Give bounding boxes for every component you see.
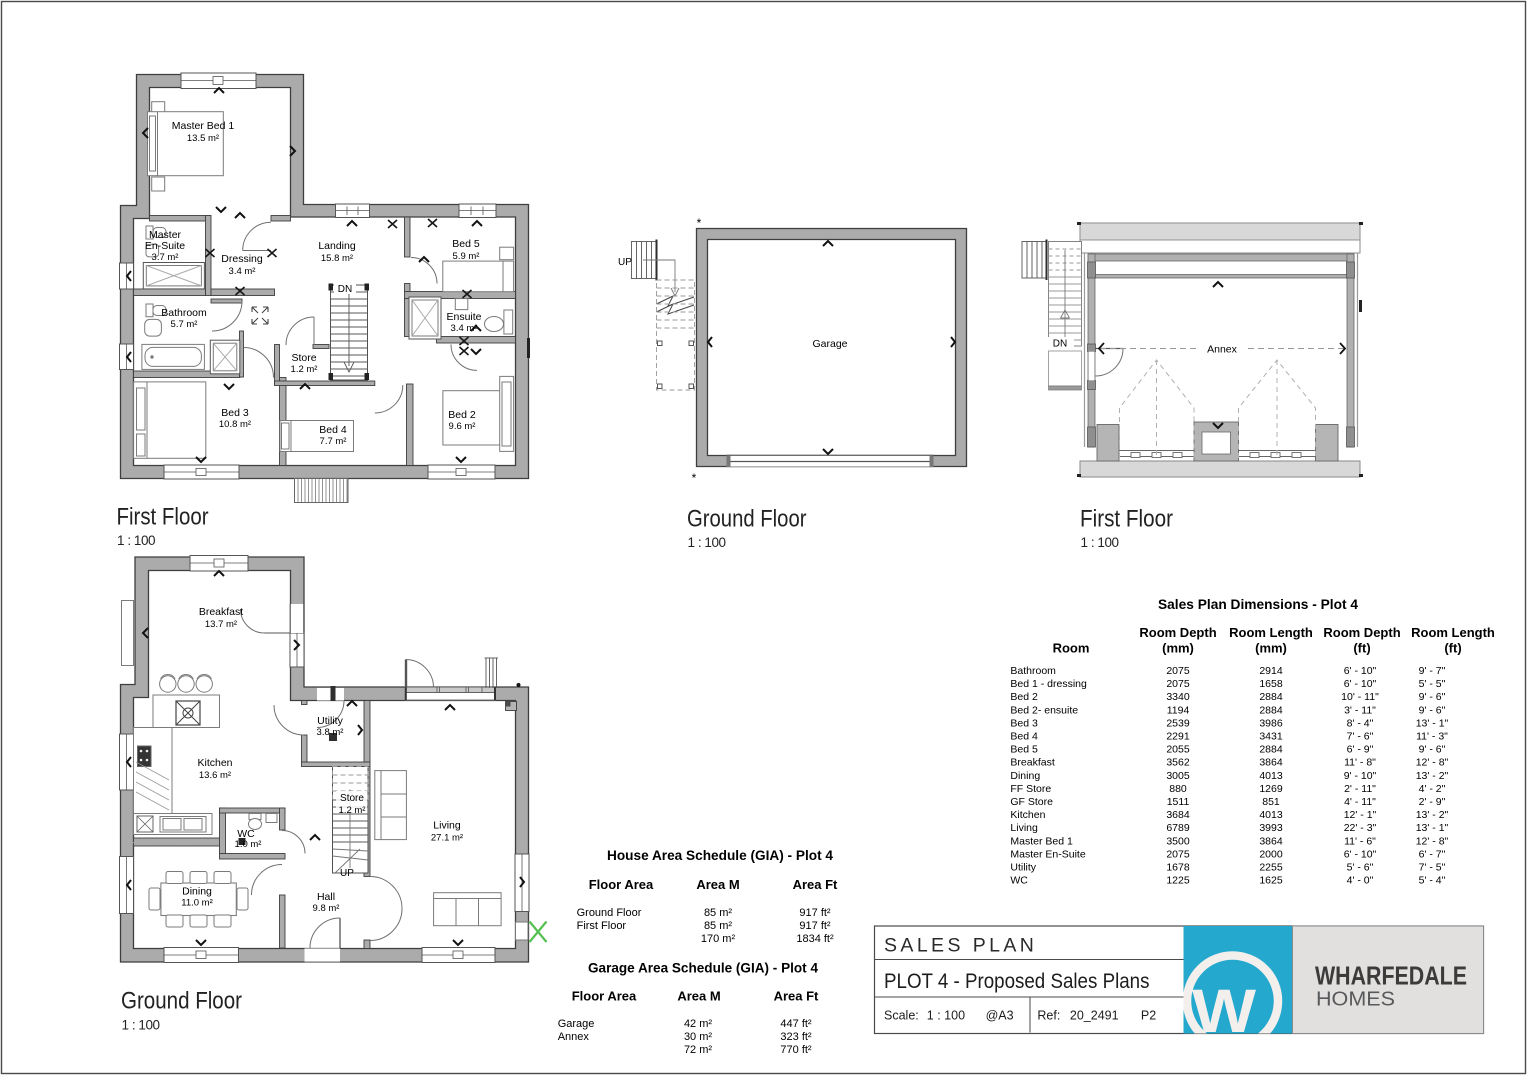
svg-text:3562: 3562 bbox=[1166, 757, 1190, 769]
svg-text:3.7 m²: 3.7 m² bbox=[152, 252, 179, 263]
svg-text:12' - 8": 12' - 8" bbox=[1416, 835, 1449, 847]
svg-text:13.5 m²: 13.5 m² bbox=[187, 133, 219, 144]
svg-text:4013: 4013 bbox=[1259, 809, 1283, 821]
svg-text:1194: 1194 bbox=[1167, 704, 1190, 716]
svg-text:9' - 10": 9' - 10" bbox=[1344, 770, 1377, 782]
svg-text:10' - 11": 10' - 11" bbox=[1341, 691, 1379, 703]
svg-text:Room Depth: Room Depth bbox=[1139, 625, 1216, 640]
svg-text:85 m²: 85 m² bbox=[704, 920, 732, 932]
svg-text:(mm): (mm) bbox=[1255, 641, 1287, 656]
svg-text:Bed 4: Bed 4 bbox=[1010, 731, 1038, 743]
svg-text:Breakfast: Breakfast bbox=[199, 606, 243, 618]
svg-text:4' - 0": 4' - 0" bbox=[1347, 875, 1374, 887]
svg-text:1.2 m²: 1.2 m² bbox=[339, 805, 366, 816]
svg-text:Kitchen: Kitchen bbox=[197, 757, 232, 769]
svg-text:Ref:: Ref: bbox=[1037, 1009, 1060, 1023]
svg-text:4' - 11": 4' - 11" bbox=[1344, 796, 1376, 808]
svg-text:SALES PLAN: SALES PLAN bbox=[884, 935, 1037, 957]
svg-text:9' - 6": 9' - 6" bbox=[1419, 691, 1446, 703]
svg-text:9.6 m²: 9.6 m² bbox=[449, 421, 476, 432]
svg-text:Bed 3: Bed 3 bbox=[1010, 717, 1038, 729]
svg-text:1658: 1658 bbox=[1259, 678, 1283, 690]
svg-text:6' - 10": 6' - 10" bbox=[1344, 848, 1377, 860]
svg-text:First Floor: First Floor bbox=[1080, 506, 1173, 533]
svg-text:Store: Store bbox=[291, 352, 316, 364]
svg-text:8' - 4": 8' - 4" bbox=[1347, 717, 1374, 729]
svg-text:1269: 1269 bbox=[1259, 783, 1283, 795]
svg-text:Master Bed 1: Master Bed 1 bbox=[1010, 835, 1073, 847]
svg-text:Bed 1 - dressing: Bed 1 - dressing bbox=[1010, 678, 1087, 690]
svg-text:1511: 1511 bbox=[1167, 796, 1190, 808]
svg-text:1.2 m²: 1.2 m² bbox=[291, 364, 318, 375]
svg-text:3993: 3993 bbox=[1259, 822, 1283, 834]
svg-text:9' - 7": 9' - 7" bbox=[1419, 665, 1446, 677]
svg-text:27.1 m²: 27.1 m² bbox=[431, 833, 463, 844]
svg-text:2' - 9": 2' - 9" bbox=[1419, 796, 1446, 808]
svg-text:15.8 m²: 15.8 m² bbox=[321, 253, 353, 264]
svg-text:6' - 10": 6' - 10" bbox=[1344, 678, 1377, 690]
svg-text:1 : 100: 1 : 100 bbox=[688, 535, 727, 550]
svg-text:13.7 m²: 13.7 m² bbox=[205, 619, 237, 630]
svg-text:13' - 1": 13' - 1" bbox=[1416, 822, 1449, 834]
svg-text:1625: 1625 bbox=[1259, 875, 1283, 887]
svg-text:85 m²: 85 m² bbox=[704, 907, 732, 919]
svg-text:1 : 100: 1 : 100 bbox=[1081, 535, 1120, 550]
svg-text:3340: 3340 bbox=[1166, 691, 1190, 703]
svg-text:Bathroom: Bathroom bbox=[1010, 665, 1056, 677]
svg-text:En-Suite: En-Suite bbox=[145, 240, 185, 252]
svg-text:2075: 2075 bbox=[1166, 848, 1190, 860]
svg-text:UP: UP bbox=[618, 257, 632, 268]
svg-text:3' - 11": 3' - 11" bbox=[1344, 704, 1376, 716]
svg-text:42 m²: 42 m² bbox=[684, 1018, 712, 1030]
svg-text:6' - 9": 6' - 9" bbox=[1347, 744, 1374, 756]
svg-text:12' - 1": 12' - 1" bbox=[1344, 809, 1377, 821]
svg-text:3431: 3431 bbox=[1259, 731, 1283, 743]
svg-text:WC: WC bbox=[1010, 875, 1028, 887]
svg-text:*: * bbox=[692, 471, 697, 485]
svg-text:Room Length: Room Length bbox=[1411, 625, 1495, 640]
svg-text:Ground Floor: Ground Floor bbox=[577, 907, 642, 919]
svg-text:(mm): (mm) bbox=[1162, 641, 1194, 656]
svg-text:9.8 m²: 9.8 m² bbox=[313, 903, 340, 914]
svg-text:851: 851 bbox=[1262, 796, 1280, 808]
svg-text:6' - 7": 6' - 7" bbox=[1419, 848, 1446, 860]
svg-text:DN: DN bbox=[1053, 339, 1067, 350]
svg-text:First Floor: First Floor bbox=[577, 920, 627, 932]
svg-text:12' - 8": 12' - 8" bbox=[1416, 757, 1449, 769]
svg-text:PLOT 4 - Proposed Sales Plans: PLOT 4 - Proposed Sales Plans bbox=[884, 970, 1150, 993]
svg-text:(ft): (ft) bbox=[1353, 641, 1370, 656]
svg-text:Master En-Suite: Master En-Suite bbox=[1010, 848, 1085, 860]
svg-text:Annex: Annex bbox=[558, 1031, 590, 1043]
svg-text:3.8 m²: 3.8 m² bbox=[317, 727, 344, 738]
svg-text:Dressing: Dressing bbox=[221, 253, 263, 265]
svg-text:22' - 3": 22' - 3" bbox=[1344, 822, 1377, 834]
svg-text:Area Ft: Area Ft bbox=[793, 877, 838, 892]
svg-text:9' - 6": 9' - 6" bbox=[1419, 744, 1446, 756]
svg-text:11' - 8": 11' - 8" bbox=[1344, 757, 1376, 769]
svg-text:Garage Area Schedule (GIA) - P: Garage Area Schedule (GIA) - Plot 4 bbox=[588, 961, 818, 976]
svg-text:2' - 11": 2' - 11" bbox=[1344, 783, 1376, 795]
svg-text:13' - 1": 13' - 1" bbox=[1416, 717, 1449, 729]
svg-text:11' - 6": 11' - 6" bbox=[1344, 835, 1376, 847]
svg-text:13' - 2": 13' - 2" bbox=[1416, 770, 1449, 782]
svg-text:2884: 2884 bbox=[1259, 691, 1283, 703]
svg-text:Landing: Landing bbox=[318, 240, 356, 252]
svg-text:917 ft²: 917 ft² bbox=[799, 920, 831, 932]
svg-text:Hall: Hall bbox=[317, 891, 335, 903]
svg-text:5.9 m²: 5.9 m² bbox=[453, 251, 480, 262]
svg-text:2291: 2291 bbox=[1166, 731, 1190, 743]
svg-text:Room Length: Room Length bbox=[1229, 625, 1313, 640]
svg-text:UP: UP bbox=[340, 868, 354, 879]
svg-text:Kitchen: Kitchen bbox=[1010, 809, 1045, 821]
svg-text:Bed 5: Bed 5 bbox=[452, 238, 480, 250]
svg-text:2884: 2884 bbox=[1259, 704, 1283, 716]
svg-text:Dining: Dining bbox=[182, 886, 212, 898]
svg-text:1.0 m²: 1.0 m² bbox=[235, 839, 262, 850]
svg-text:Utility: Utility bbox=[1010, 862, 1036, 874]
svg-text:Bed 5: Bed 5 bbox=[1010, 744, 1038, 756]
svg-text:3500: 3500 bbox=[1166, 835, 1190, 847]
svg-text:11' - 3": 11' - 3" bbox=[1416, 731, 1448, 743]
svg-text:First Floor: First Floor bbox=[117, 504, 209, 531]
svg-text:3986: 3986 bbox=[1259, 717, 1283, 729]
svg-text:Ensuite: Ensuite bbox=[446, 311, 481, 323]
svg-text:2884: 2884 bbox=[1259, 744, 1283, 756]
svg-text:Bed 2- ensuite: Bed 2- ensuite bbox=[1010, 704, 1078, 716]
svg-text:Annex: Annex bbox=[1207, 344, 1238, 356]
svg-text:FF Store: FF Store bbox=[1010, 783, 1051, 795]
svg-text:13' - 2": 13' - 2" bbox=[1416, 809, 1449, 821]
svg-text:2075: 2075 bbox=[1166, 678, 1190, 690]
svg-text:3.4 m²: 3.4 m² bbox=[451, 323, 478, 334]
svg-text:917 ft²: 917 ft² bbox=[799, 907, 831, 919]
svg-text:WHARFEDALE: WHARFEDALE bbox=[1315, 961, 1467, 991]
svg-text:1225: 1225 bbox=[1166, 875, 1190, 887]
svg-text:Scale:: Scale: bbox=[884, 1009, 919, 1023]
svg-text:6' - 10": 6' - 10" bbox=[1344, 665, 1377, 677]
svg-text:Garage: Garage bbox=[558, 1018, 595, 1030]
svg-text:HOMES: HOMES bbox=[1316, 989, 1395, 1011]
svg-text:2255: 2255 bbox=[1259, 862, 1283, 874]
svg-text:20_2491: 20_2491 bbox=[1070, 1009, 1119, 1023]
svg-text:Floor Area: Floor Area bbox=[572, 989, 637, 1004]
svg-text:*: * bbox=[697, 216, 702, 230]
svg-text:@A3: @A3 bbox=[986, 1009, 1014, 1023]
svg-text:5' - 6": 5' - 6" bbox=[1347, 862, 1374, 874]
svg-text:Bathroom: Bathroom bbox=[161, 307, 207, 319]
svg-text:(ft): (ft) bbox=[1444, 641, 1461, 656]
svg-text:Area Ft: Area Ft bbox=[774, 989, 819, 1004]
svg-text:Bed 2: Bed 2 bbox=[1010, 691, 1038, 703]
svg-text:3864: 3864 bbox=[1259, 835, 1283, 847]
svg-text:2055: 2055 bbox=[1166, 744, 1190, 756]
svg-text:7' - 6": 7' - 6" bbox=[1347, 731, 1374, 743]
svg-text:Dining: Dining bbox=[1010, 770, 1040, 782]
svg-text:Master Bed 1: Master Bed 1 bbox=[172, 120, 235, 132]
svg-text:Breakfast: Breakfast bbox=[1010, 757, 1054, 769]
svg-text:7' - 5": 7' - 5" bbox=[1419, 862, 1446, 874]
svg-text:Room Depth: Room Depth bbox=[1323, 625, 1400, 640]
svg-text:Utility: Utility bbox=[317, 715, 343, 727]
svg-text:9' - 6": 9' - 6" bbox=[1419, 704, 1446, 716]
svg-text:5' - 4": 5' - 4" bbox=[1419, 875, 1446, 887]
svg-text:P2: P2 bbox=[1141, 1009, 1156, 1023]
svg-text:Bed 2: Bed 2 bbox=[448, 409, 476, 421]
svg-text:3.4 m²: 3.4 m² bbox=[229, 266, 256, 277]
svg-text:880: 880 bbox=[1169, 783, 1187, 795]
svg-text:7.7 m²: 7.7 m² bbox=[320, 436, 347, 447]
svg-text:5' - 5": 5' - 5" bbox=[1419, 678, 1446, 690]
svg-text:1 : 100: 1 : 100 bbox=[117, 533, 156, 548]
svg-text:3864: 3864 bbox=[1259, 757, 1283, 769]
svg-text:Living: Living bbox=[433, 820, 461, 832]
svg-text:Area M: Area M bbox=[677, 989, 720, 1004]
svg-text:5.7 m²: 5.7 m² bbox=[171, 319, 198, 330]
svg-text:DN: DN bbox=[338, 284, 352, 295]
svg-text:3684: 3684 bbox=[1166, 809, 1190, 821]
svg-text:6789: 6789 bbox=[1166, 822, 1190, 834]
svg-text:4013: 4013 bbox=[1259, 770, 1283, 782]
svg-text:Room: Room bbox=[1053, 641, 1090, 656]
svg-text:Garage: Garage bbox=[812, 338, 847, 350]
svg-text:11.0 m²: 11.0 m² bbox=[181, 898, 213, 909]
svg-text:323 ft²: 323 ft² bbox=[780, 1031, 812, 1043]
svg-text:10.8 m²: 10.8 m² bbox=[219, 419, 251, 430]
svg-text:Area M: Area M bbox=[696, 877, 739, 892]
svg-text:170 m²: 170 m² bbox=[701, 933, 736, 945]
svg-text:Living: Living bbox=[1010, 822, 1038, 834]
svg-text:Floor Area: Floor Area bbox=[589, 877, 654, 892]
svg-text:770 ft²: 770 ft² bbox=[780, 1044, 812, 1056]
svg-text:1 : 100: 1 : 100 bbox=[122, 1018, 161, 1033]
svg-text:447 ft²: 447 ft² bbox=[780, 1018, 812, 1030]
svg-text:House Area Schedule (GIA) - Pl: House Area Schedule (GIA) - Plot 4 bbox=[607, 848, 833, 863]
svg-text:1834 ft²: 1834 ft² bbox=[796, 933, 834, 945]
svg-text:2075: 2075 bbox=[1166, 665, 1190, 677]
svg-text:GF Store: GF Store bbox=[1010, 796, 1053, 808]
svg-text:Bed 4: Bed 4 bbox=[319, 424, 347, 436]
svg-text:3005: 3005 bbox=[1166, 770, 1190, 782]
svg-text:30 m²: 30 m² bbox=[684, 1031, 712, 1043]
svg-text:2539: 2539 bbox=[1166, 717, 1190, 729]
svg-text:13.6 m²: 13.6 m² bbox=[199, 770, 231, 781]
svg-text:1678: 1678 bbox=[1166, 862, 1190, 874]
svg-text:Sales Plan Dimensions - Plot: Sales Plan Dimensions - Plot 4 bbox=[1158, 597, 1358, 612]
svg-text:Store: Store bbox=[340, 793, 364, 804]
svg-text:Ground Floor: Ground Floor bbox=[121, 988, 242, 1015]
svg-text:4' - 2": 4' - 2" bbox=[1419, 783, 1446, 795]
svg-text:Bed 3: Bed 3 bbox=[221, 407, 249, 419]
svg-text:1 : 100: 1 : 100 bbox=[927, 1009, 965, 1023]
svg-text:2914: 2914 bbox=[1259, 665, 1283, 677]
svg-text:Ground Floor: Ground Floor bbox=[687, 506, 807, 533]
svg-text:72 m²: 72 m² bbox=[684, 1044, 712, 1056]
svg-text:2000: 2000 bbox=[1259, 848, 1283, 860]
